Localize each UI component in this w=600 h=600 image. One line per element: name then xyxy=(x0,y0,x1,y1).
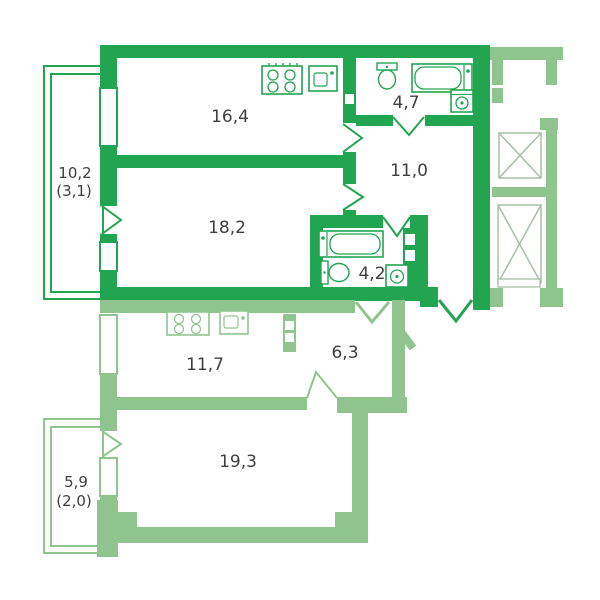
door-swing xyxy=(343,124,362,152)
toilet-icon xyxy=(320,258,351,287)
wall-segment xyxy=(100,45,117,90)
wall-segment xyxy=(410,215,428,228)
shaft-notch xyxy=(285,321,294,330)
toilet-icon xyxy=(375,62,399,90)
room-area-label: 11,0 xyxy=(390,161,428,181)
window xyxy=(99,87,118,147)
wall-segment xyxy=(117,527,368,543)
wall-segment xyxy=(343,58,356,123)
bathtub-icon xyxy=(318,230,384,258)
room-area-label: (3,1) xyxy=(56,182,92,200)
wall-segment xyxy=(490,47,563,60)
elevator-shaft xyxy=(498,205,541,283)
door-swing xyxy=(393,117,424,135)
wall-segment xyxy=(100,155,345,168)
stove-icon xyxy=(166,309,210,336)
wall-segment xyxy=(546,118,557,290)
window xyxy=(99,241,118,272)
room-area-label: 16,4 xyxy=(211,107,249,127)
wall-segment xyxy=(540,288,563,307)
wall-segment xyxy=(356,115,393,126)
wall-segment xyxy=(492,60,503,85)
room-area-label: 18,2 xyxy=(208,218,246,238)
stove-icon xyxy=(261,63,303,95)
shaft-notch xyxy=(285,333,294,342)
room-area-label: 6,3 xyxy=(331,343,358,363)
shaft-notch xyxy=(405,250,415,261)
wall-segment xyxy=(117,512,137,527)
elevator-shaft xyxy=(499,133,541,178)
wall-segment xyxy=(352,410,368,527)
window xyxy=(99,457,118,497)
wall-segment xyxy=(492,187,546,197)
wall-segment xyxy=(546,60,557,85)
sink-icon xyxy=(308,65,338,92)
room-area-label: 11,7 xyxy=(186,355,224,375)
room-area-label: 4,7 xyxy=(392,93,419,113)
entrance-door-swing xyxy=(356,302,389,322)
washing-machine-icon xyxy=(385,264,409,288)
wall-segment xyxy=(490,288,503,307)
wall-segment xyxy=(337,397,407,413)
wall-segment xyxy=(335,512,352,527)
wall-segment xyxy=(473,45,490,310)
shaft-notch xyxy=(405,234,415,245)
window xyxy=(99,314,118,375)
wall-segment xyxy=(420,287,438,307)
room-area-label: 19,3 xyxy=(219,452,257,472)
room-area-label: 10,2 xyxy=(58,164,91,182)
wall-segment xyxy=(492,88,503,103)
wall-segment xyxy=(100,45,490,58)
wall-segment xyxy=(100,496,117,557)
sink-icon xyxy=(219,310,249,335)
door-swing xyxy=(102,431,121,457)
floor-plan-canvas: 16,4 4,7 11,0 18,2 4,2 10,2 (3,1) 11,7 6… xyxy=(0,0,600,600)
door-swing xyxy=(343,184,363,210)
stair-landing xyxy=(498,279,540,287)
wall-segment xyxy=(100,397,307,410)
room-area-label: 4,2 xyxy=(358,264,385,284)
wall-segment xyxy=(100,287,438,301)
wall-segment xyxy=(425,115,473,126)
wall-segment xyxy=(343,152,356,184)
room-area-label: (2,0) xyxy=(56,492,92,510)
washing-machine-icon xyxy=(450,89,474,113)
entrance-door-swing xyxy=(439,300,472,321)
room-area-label: 5,9 xyxy=(64,473,88,491)
door-swing xyxy=(307,372,337,398)
door-swing xyxy=(102,206,121,234)
shaft-notch xyxy=(345,94,354,104)
